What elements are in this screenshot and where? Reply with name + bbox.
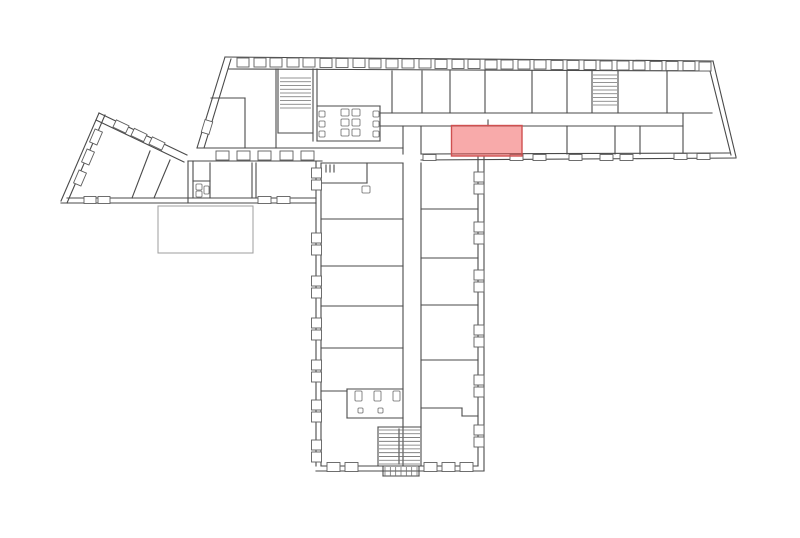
highlighted-room[interactable] (452, 126, 523, 157)
walls (61, 57, 736, 476)
terrace-outline (158, 206, 253, 253)
windows (74, 58, 711, 472)
floor-plan (0, 0, 800, 538)
floor-plan-canvas (0, 0, 800, 538)
